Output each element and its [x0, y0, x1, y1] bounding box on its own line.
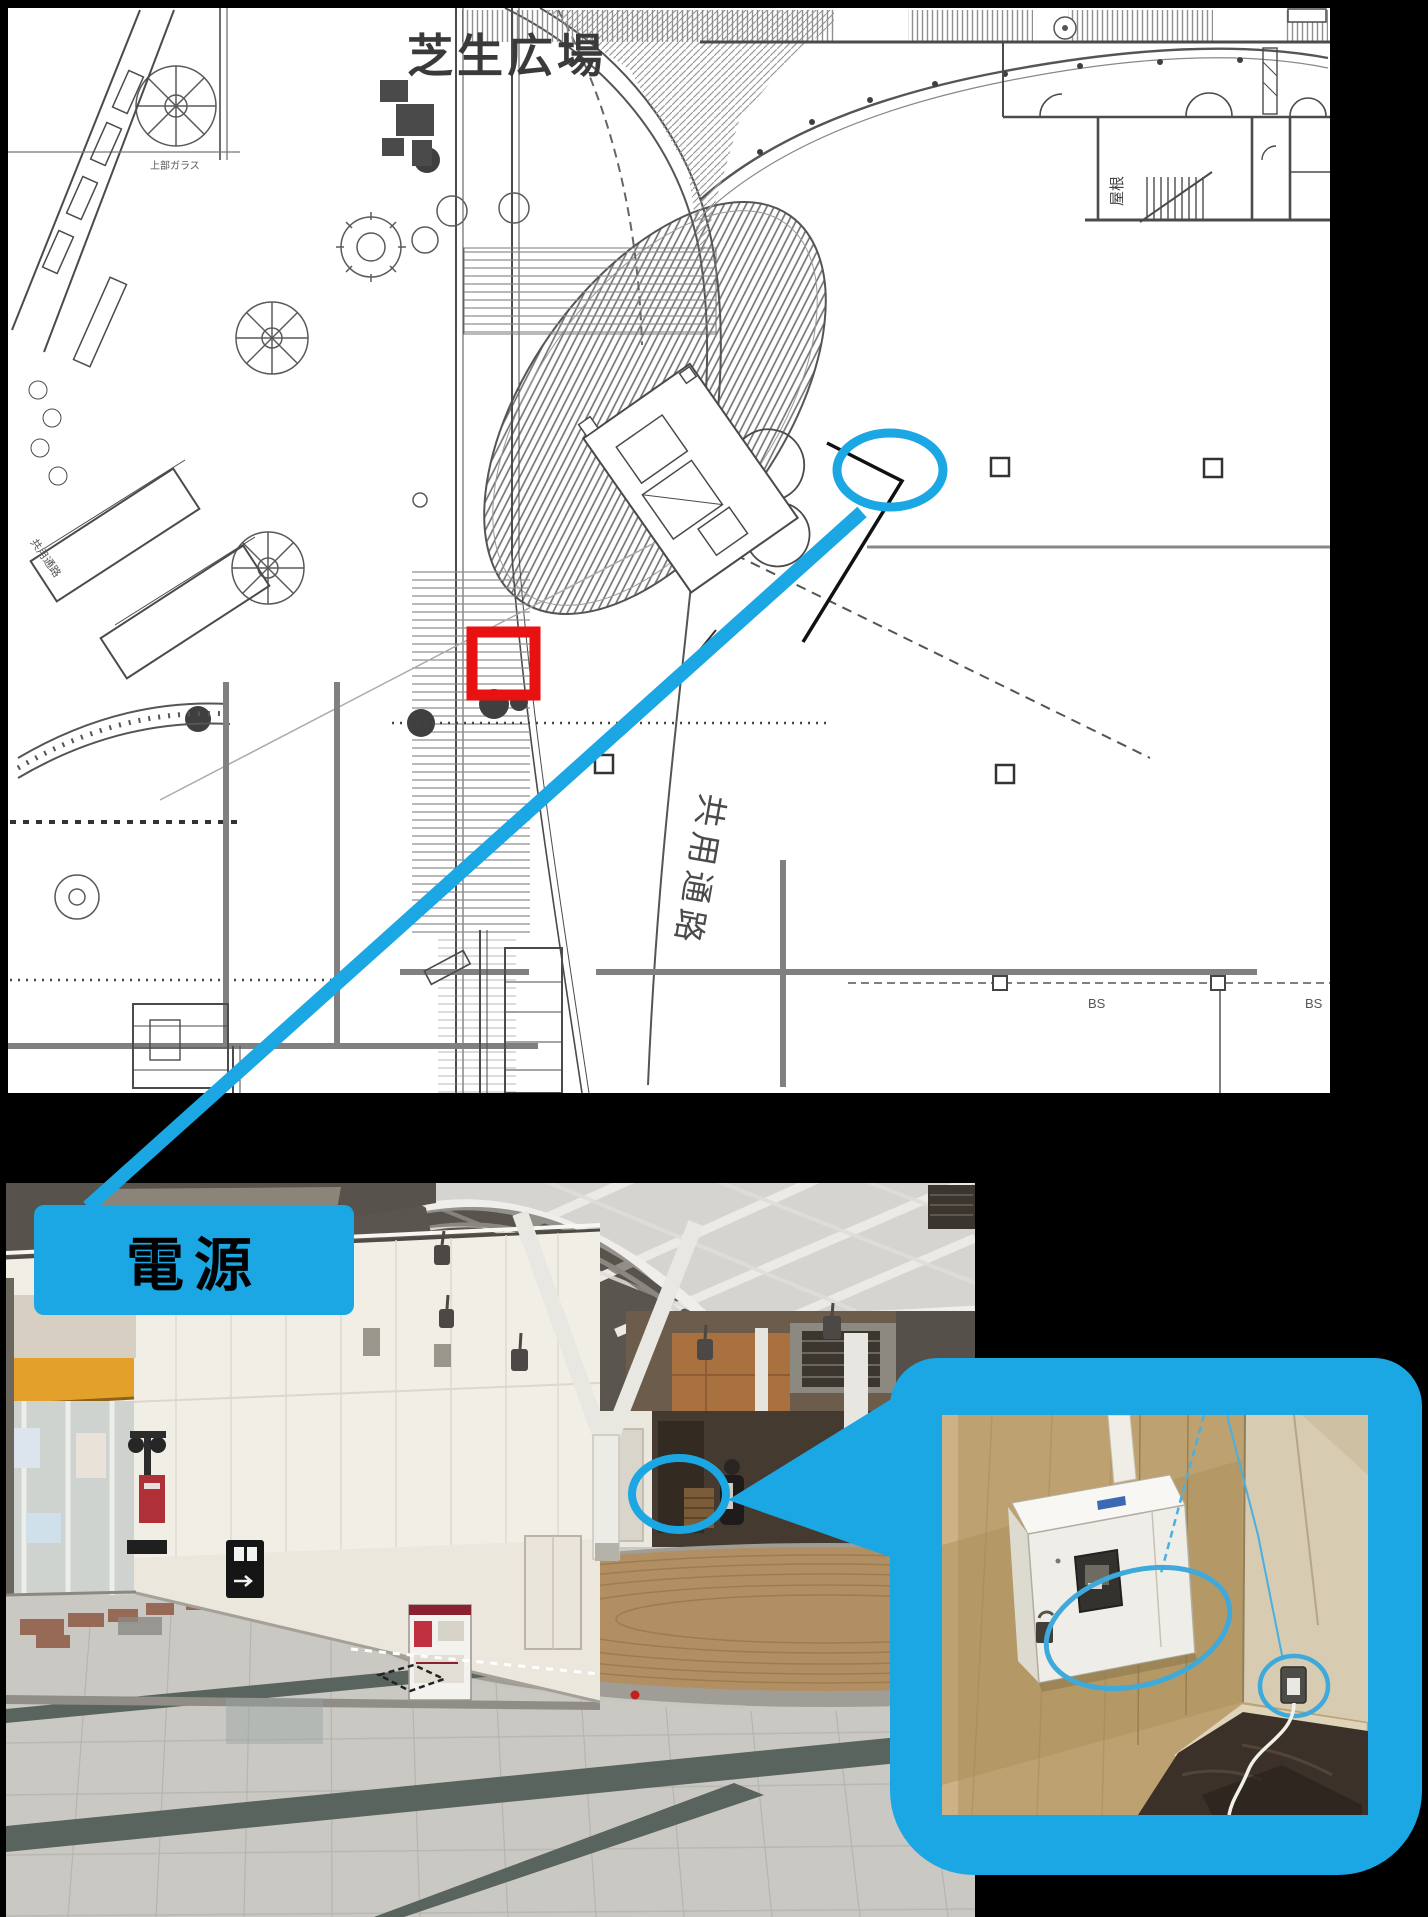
- grid-label: BS: [1088, 996, 1106, 1011]
- power-label-text: 電源: [126, 1218, 262, 1302]
- lawn-plaza-label: 芝生広場: [407, 30, 607, 82]
- toilet-sign: [226, 1540, 264, 1598]
- power-label: 電源: [34, 1205, 354, 1315]
- bench: [684, 1488, 714, 1528]
- slide-canvas: BS BS: [0, 0, 1428, 1917]
- drain-plate: [118, 1617, 162, 1635]
- roof-label: 屋根: [1109, 176, 1126, 206]
- notice-board: [409, 1605, 471, 1700]
- callout-photo: [942, 1415, 1368, 1815]
- grid-label: BS: [1305, 996, 1323, 1011]
- glass-note-label: 上部ガラス: [150, 159, 200, 172]
- dropped-object: [631, 1691, 640, 1700]
- shop-front: [6, 1278, 136, 1595]
- name-plate: [127, 1540, 167, 1554]
- detail-callout: [890, 1358, 1422, 1875]
- floor-plan: BS BS: [8, 8, 1330, 1093]
- wall-outlet: [1281, 1667, 1306, 1703]
- roof-vent: [928, 1185, 975, 1229]
- power-box: [1008, 1475, 1198, 1692]
